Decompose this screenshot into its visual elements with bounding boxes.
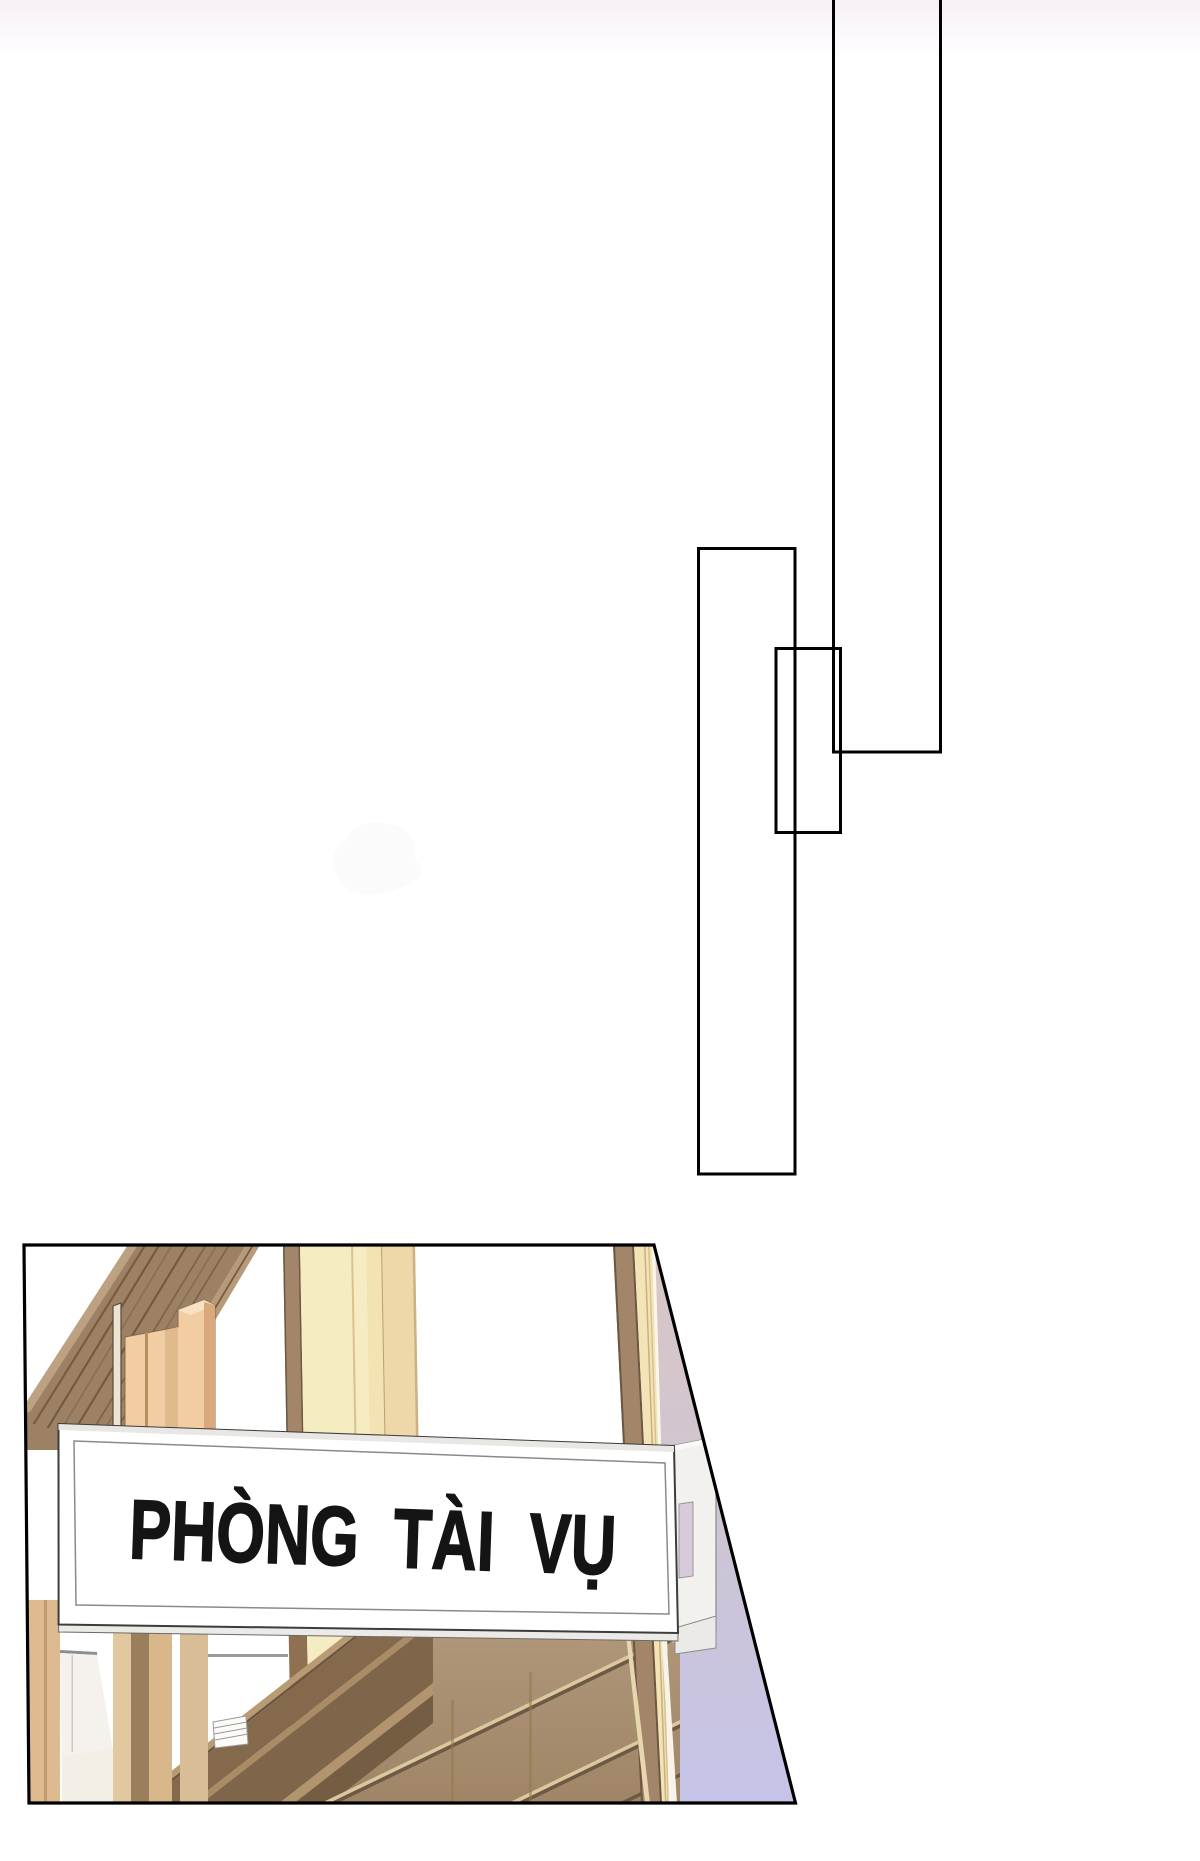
svg-text:PHÒNG TÀI VỤ: PHÒNG TÀI VỤ [128,1482,618,1593]
